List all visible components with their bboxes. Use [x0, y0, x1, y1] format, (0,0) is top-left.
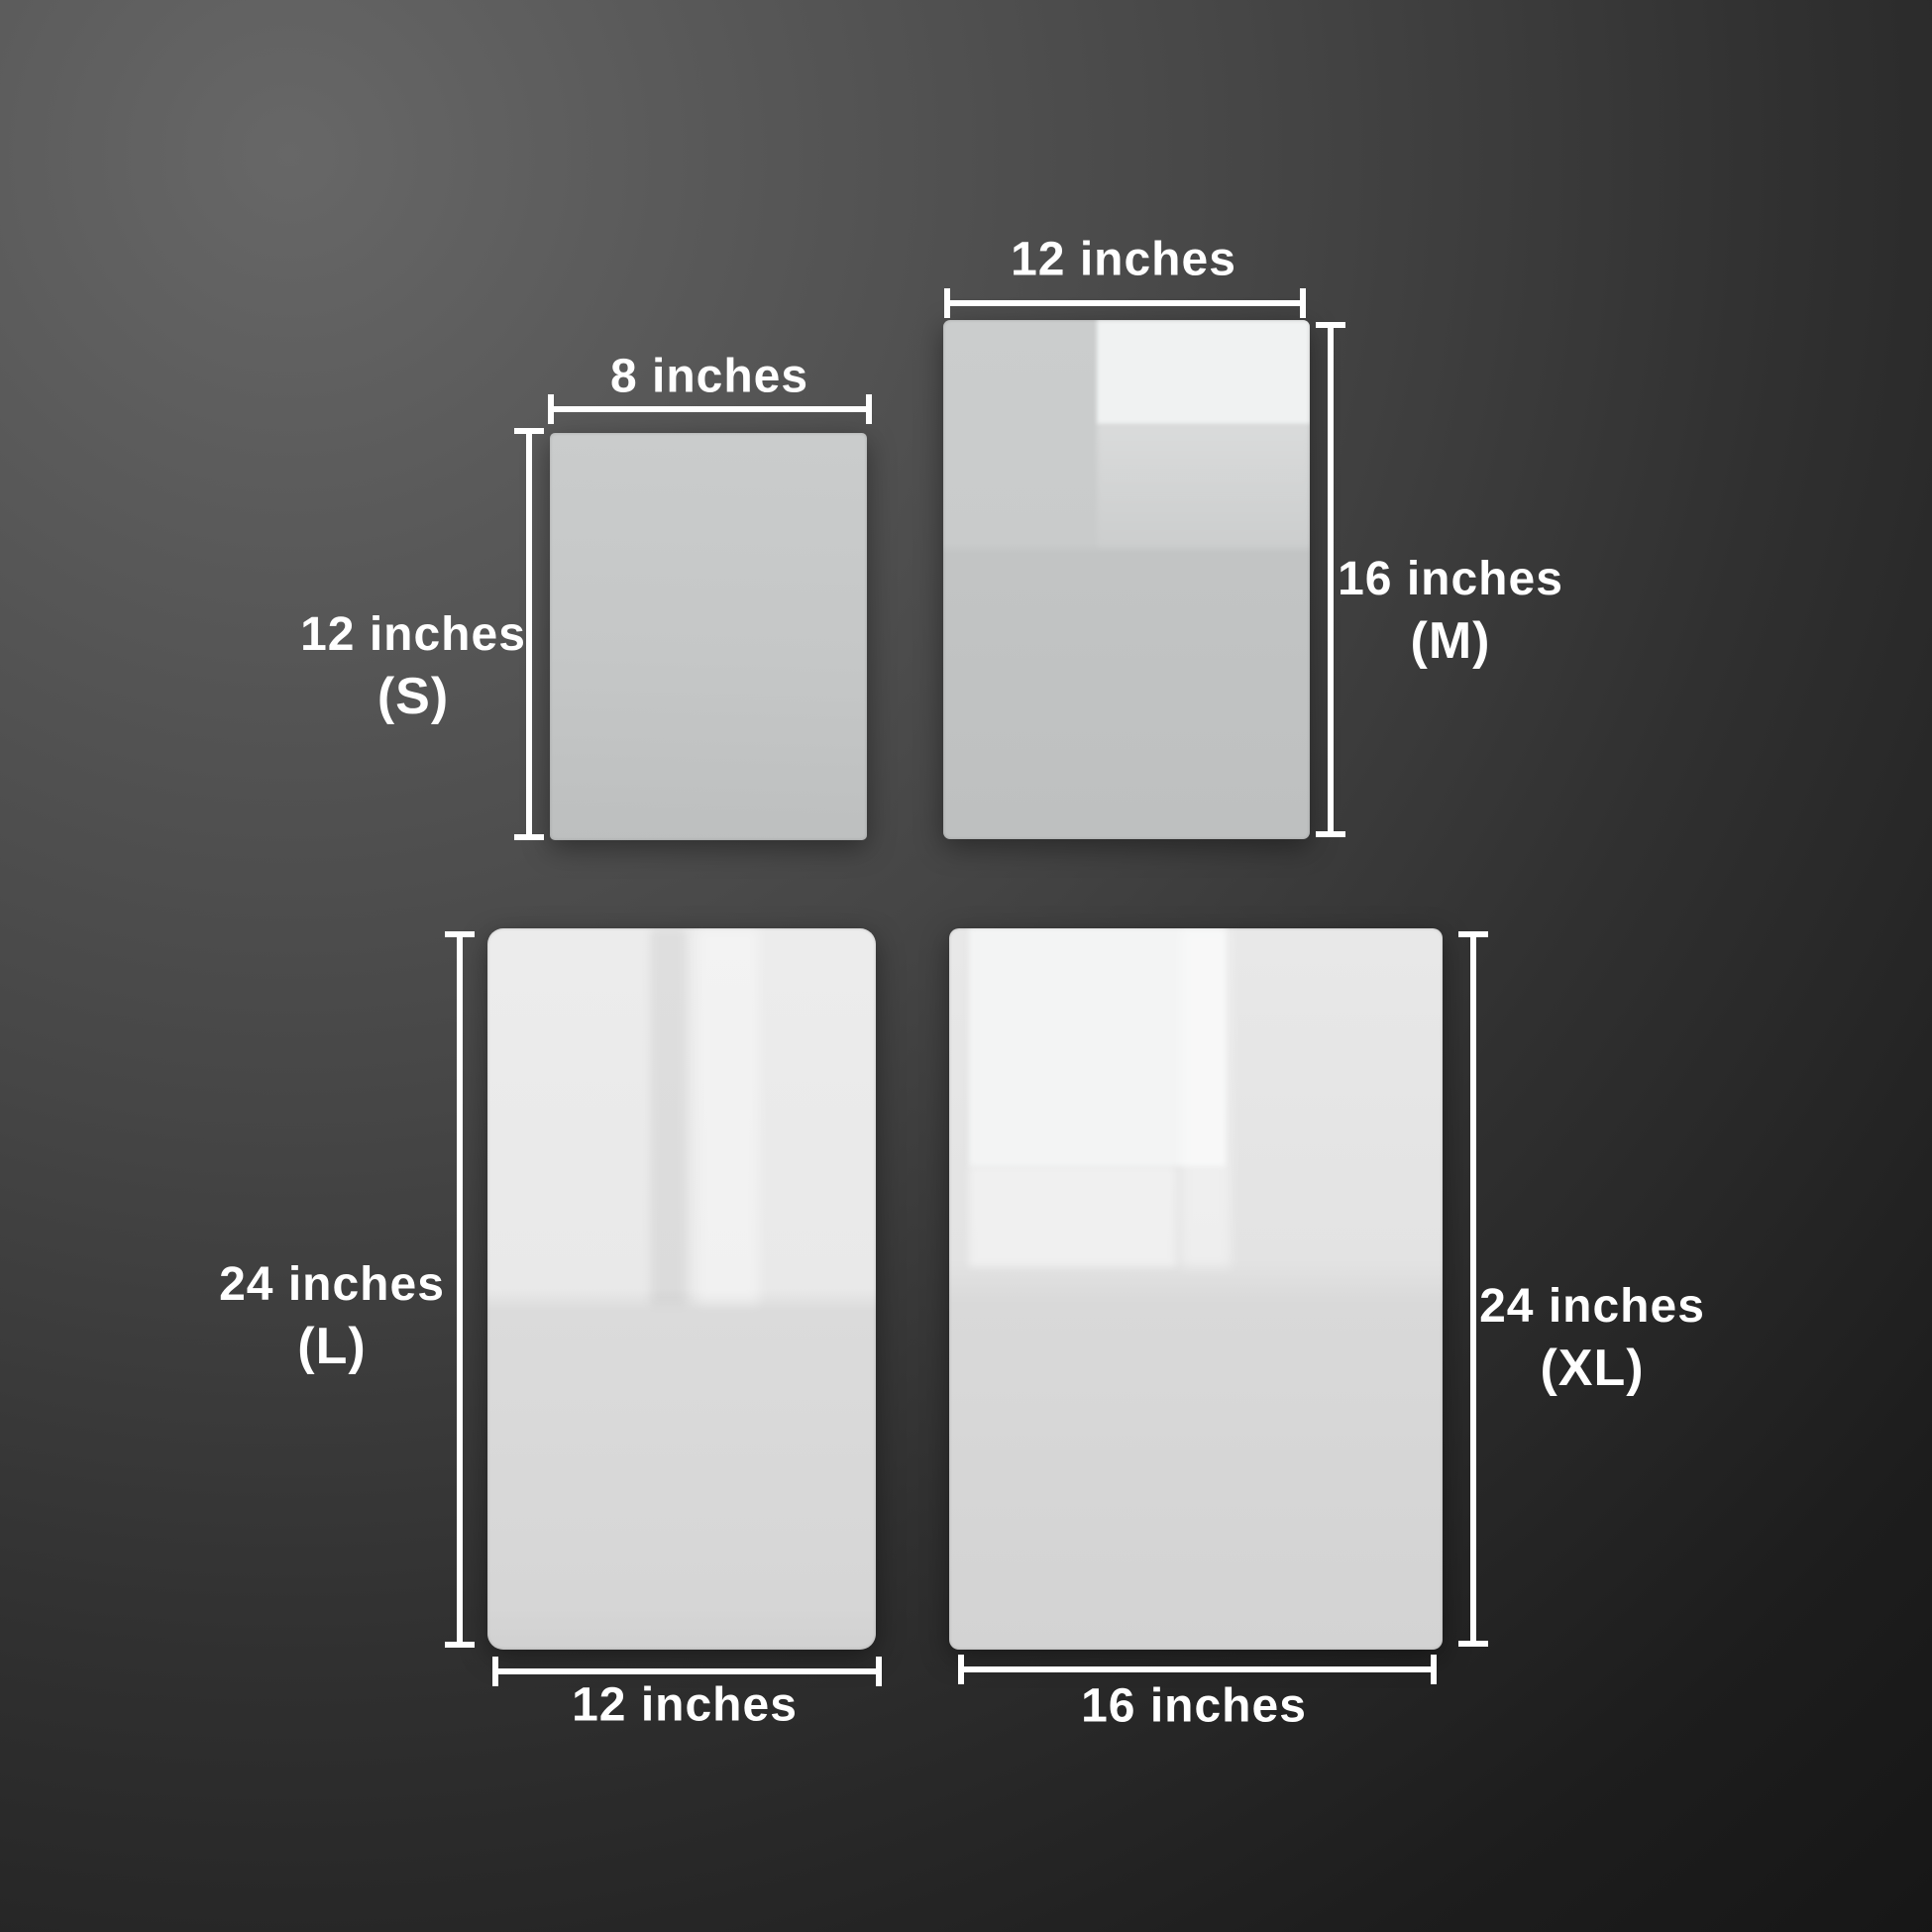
- small-height-dimension-line: [526, 428, 532, 840]
- large-height-dimension-line: [457, 931, 463, 1648]
- large-size-tag: (L): [219, 1316, 445, 1378]
- large-width-label: 12 inches: [572, 1674, 798, 1737]
- medium-height-dimension-line: [1328, 322, 1334, 837]
- reflection-highlight: [1097, 424, 1310, 549]
- small-height-label: 12 inches (S): [300, 603, 526, 728]
- small-height-value: 12 inches: [300, 603, 526, 666]
- xlarge-size-tag: (XL): [1479, 1338, 1705, 1400]
- reflection-highlight: [969, 1166, 1176, 1267]
- small-size-tag: (S): [300, 666, 526, 728]
- medium-size-tag: (M): [1338, 610, 1563, 673]
- size-chart-canvas: 8 inches 12 inches (S) 12 inches 16 inch…: [0, 0, 1932, 1932]
- small-width-label: 8 inches: [610, 346, 808, 408]
- reflection-shade: [651, 928, 686, 1304]
- xlarge-height-value: 24 inches: [1479, 1275, 1705, 1338]
- xlarge-height-label: 24 inches (XL): [1479, 1275, 1705, 1400]
- medium-width-dimension-line: [944, 300, 1306, 306]
- medium-height-value: 16 inches: [1338, 548, 1563, 610]
- panel-medium: [943, 320, 1310, 839]
- large-height-value: 24 inches: [219, 1253, 445, 1316]
- medium-width-label: 12 inches: [1011, 229, 1236, 291]
- panel-large: [487, 928, 876, 1650]
- reflection-highlight: [1097, 320, 1310, 424]
- reflection-highlight: [969, 928, 1226, 1166]
- xlarge-width-dimension-line: [958, 1666, 1437, 1672]
- reflection-highlight: [698, 928, 760, 1304]
- reflection-highlight: [1181, 928, 1231, 1267]
- xlarge-width-label: 16 inches: [1081, 1675, 1307, 1738]
- panel-small: [550, 433, 867, 840]
- large-height-label: 24 inches (L): [219, 1253, 445, 1378]
- panel-xlarge: [949, 928, 1443, 1650]
- xlarge-height-dimension-line: [1470, 931, 1476, 1647]
- medium-height-label: 16 inches (M): [1338, 548, 1563, 673]
